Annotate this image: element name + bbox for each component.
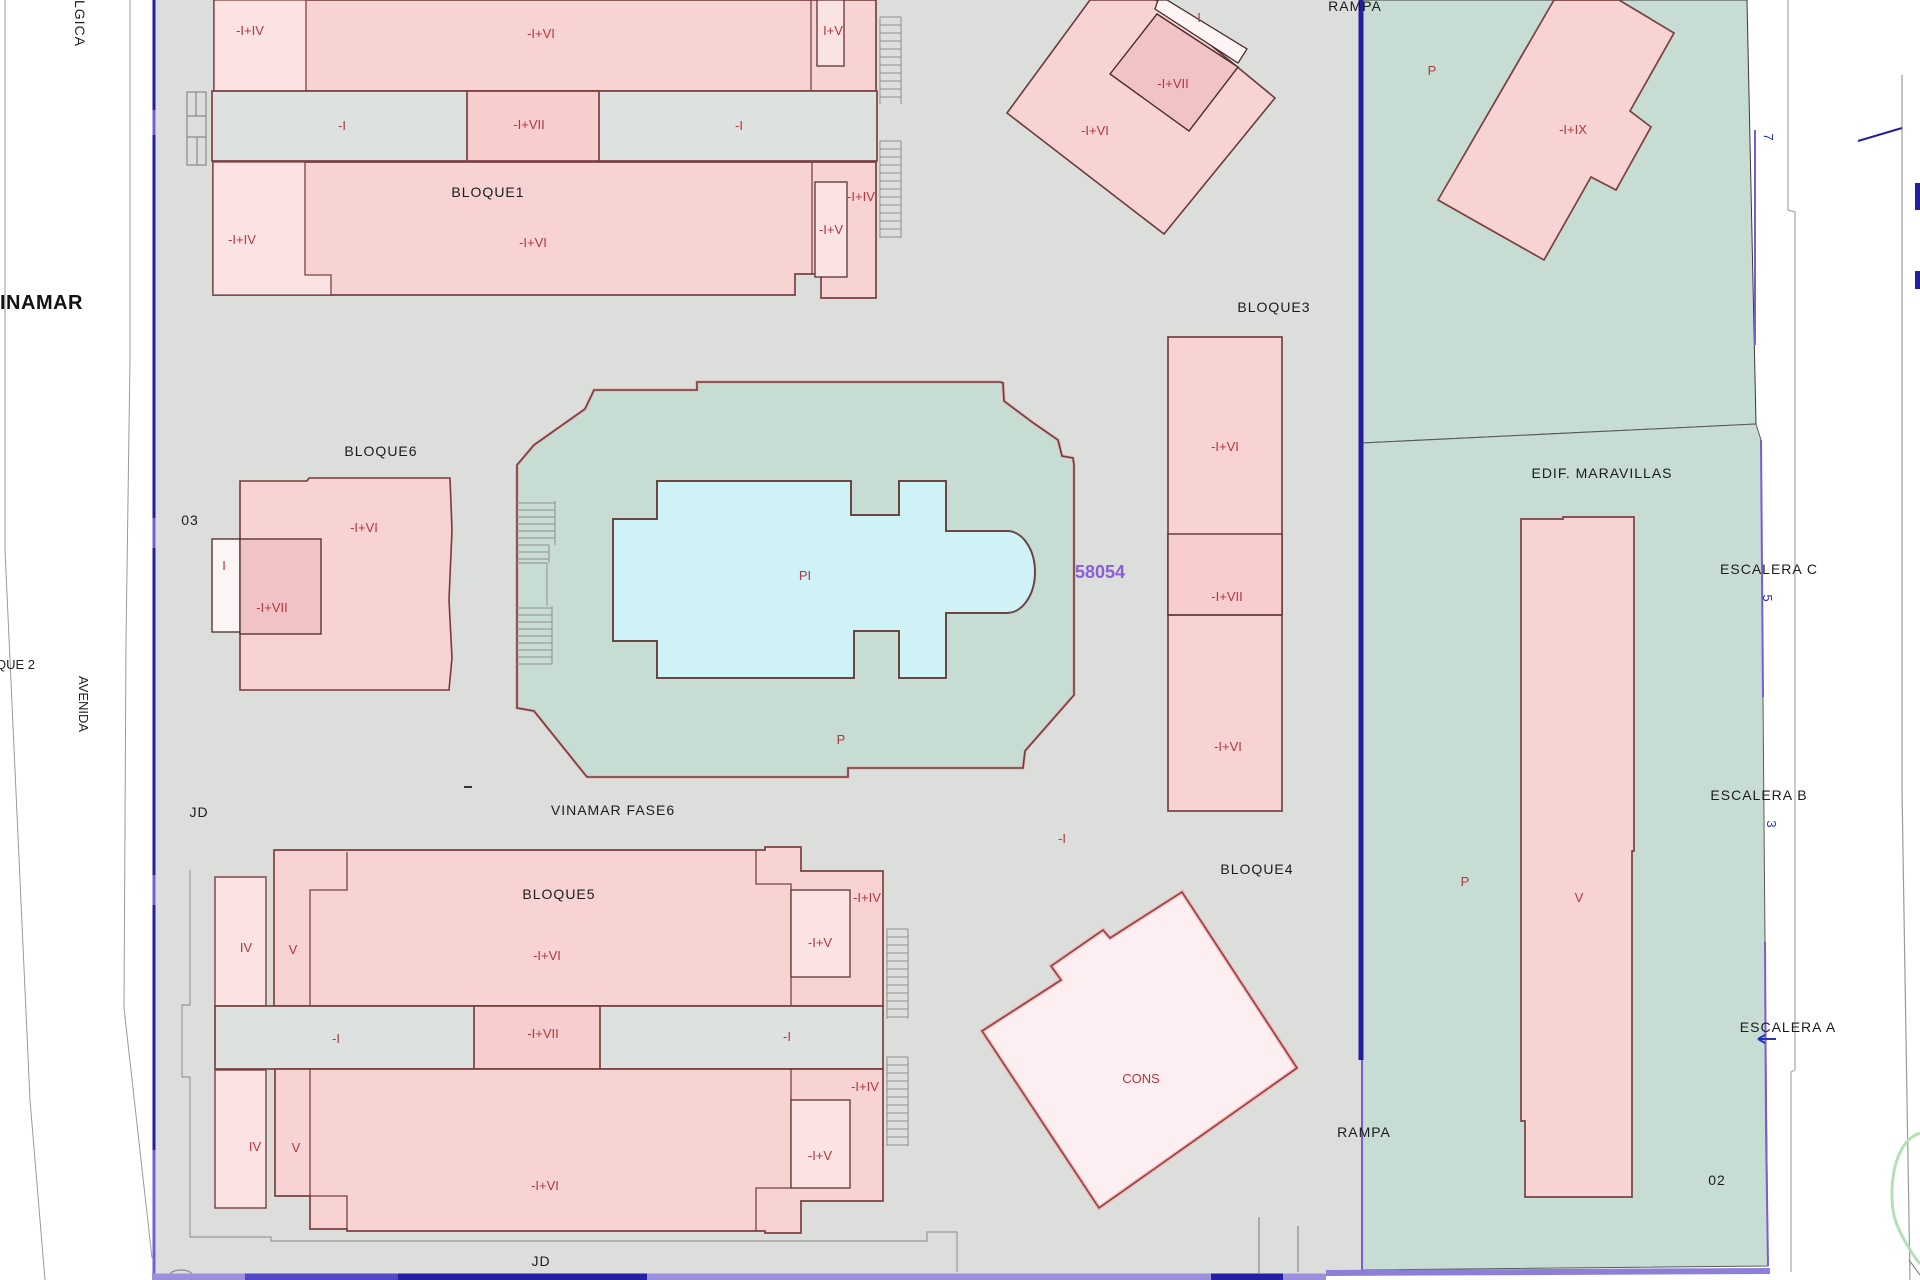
svg-text:P: P: [1461, 874, 1470, 889]
svg-text:-I+VII: -I+VII: [513, 117, 544, 132]
svg-text:3: 3: [1764, 820, 1779, 827]
svg-text:ESCALERA A: ESCALERA A: [1740, 1019, 1836, 1035]
svg-text:-I+VI: -I+VI: [531, 1178, 559, 1193]
svg-text:-I+IV: -I+IV: [851, 1079, 879, 1094]
svg-text:ESCALERA C: ESCALERA C: [1720, 561, 1818, 577]
svg-text:-I+VII: -I+VII: [256, 600, 287, 615]
svg-text:BLOQUE6: BLOQUE6: [344, 443, 417, 459]
svg-text:-I+VI: -I+VI: [527, 26, 555, 41]
svg-text:V: V: [289, 942, 298, 957]
svg-text:-I+IV: -I+IV: [853, 890, 881, 905]
svg-text:AVENIDA: AVENIDA: [76, 676, 91, 732]
svg-text:LGICA: LGICA: [72, 0, 88, 47]
svg-text:V: V: [292, 1140, 301, 1155]
svg-text:-I+VI: -I+VI: [519, 235, 547, 250]
svg-text:CONS: CONS: [1122, 1071, 1160, 1086]
svg-text:BLOQUE1: BLOQUE1: [451, 184, 524, 200]
svg-text:58054: 58054: [1075, 562, 1125, 582]
svg-text:I: I: [1197, 10, 1201, 25]
svg-text:QUE 2: QUE 2: [0, 657, 35, 672]
svg-text:-I: -I: [338, 118, 346, 133]
svg-text:-I+VI: -I+VI: [350, 520, 378, 535]
svg-text:RAMPA: RAMPA: [1328, 0, 1382, 14]
svg-text:-I+V: -I+V: [808, 935, 833, 950]
svg-text:VINAMAR FASE6: VINAMAR FASE6: [551, 802, 675, 818]
svg-text:-I+V: -I+V: [808, 1148, 833, 1163]
svg-text:IV: IV: [249, 1139, 262, 1154]
svg-text:-I+VII: -I+VII: [1157, 76, 1188, 91]
svg-text:BLOQUE4: BLOQUE4: [1220, 861, 1293, 877]
svg-text:P: P: [1428, 63, 1437, 78]
svg-text:I: I: [222, 558, 226, 573]
svg-text:-I+IV: -I+IV: [847, 189, 875, 204]
svg-text:-I+VI: -I+VI: [1081, 123, 1109, 138]
svg-text:P: P: [837, 732, 846, 747]
svg-text:INAMAR: INAMAR: [0, 292, 83, 314]
svg-text:-I+VI: -I+VI: [1214, 739, 1242, 754]
svg-text:BLOQUE5: BLOQUE5: [522, 886, 595, 902]
svg-text:JD: JD: [531, 1253, 550, 1269]
svg-text:BLOQUE3: BLOQUE3: [1237, 299, 1310, 315]
svg-text:RAMPA: RAMPA: [1337, 1124, 1391, 1140]
svg-text:-I+VI: -I+VI: [533, 948, 561, 963]
svg-text:V: V: [1575, 890, 1584, 905]
svg-text:IV: IV: [240, 940, 253, 955]
svg-text:ESCALERA B: ESCALERA B: [1710, 787, 1807, 803]
svg-text:-I+VII: -I+VII: [527, 1026, 558, 1041]
svg-text:-I+VI: -I+VI: [1211, 439, 1239, 454]
svg-text:EDIF. MARAVILLAS: EDIF. MARAVILLAS: [1531, 465, 1672, 481]
svg-text:03: 03: [181, 512, 199, 528]
svg-text:I+V: I+V: [823, 23, 843, 38]
svg-text:02: 02: [1708, 1172, 1726, 1188]
svg-text:-I+VII: -I+VII: [1211, 589, 1242, 604]
svg-text:PI: PI: [799, 568, 811, 583]
svg-text:7: 7: [1761, 133, 1776, 140]
svg-text:-I+IV: -I+IV: [236, 23, 264, 38]
svg-text:-I: -I: [735, 118, 743, 133]
svg-text:-I+IV: -I+IV: [228, 232, 256, 247]
svg-text:-I+IX: -I+IX: [1559, 122, 1587, 137]
svg-text:5: 5: [1760, 594, 1775, 601]
svg-text:-I+V: -I+V: [819, 222, 844, 237]
svg-text:JD: JD: [189, 804, 208, 820]
svg-text:-I: -I: [1058, 831, 1066, 846]
svg-text:-I: -I: [332, 1031, 340, 1046]
svg-text:-I: -I: [783, 1029, 791, 1044]
